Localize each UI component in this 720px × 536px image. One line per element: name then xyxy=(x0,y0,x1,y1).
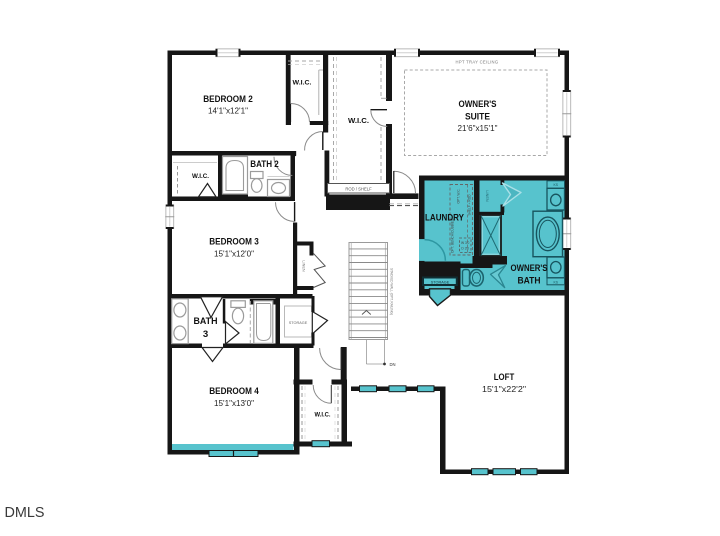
svg-text:W.I.C.: W.I.C. xyxy=(293,80,312,87)
svg-text:BEDROOM 3: BEDROOM 3 xyxy=(209,237,259,248)
svg-text:HPT TRAY CEILING: HPT TRAY CEILING xyxy=(456,60,499,65)
svg-text:KS: KS xyxy=(554,183,559,187)
svg-text:W.I.C.: W.I.C. xyxy=(348,116,369,125)
svg-text:OWNER'S: OWNER'S xyxy=(459,99,497,110)
svg-text:STACKED WALL (OPT. RAILING): STACKED WALL (OPT. RAILING) xyxy=(390,268,394,315)
svg-text:3: 3 xyxy=(203,329,208,340)
svg-text:BEDROOM 2: BEDROOM 2 xyxy=(203,94,253,105)
svg-text:LINEN: LINEN xyxy=(485,190,489,201)
svg-text:OPT. BENCH/CUBBIES: OPT. BENCH/CUBBIES xyxy=(451,219,455,253)
svg-text:SHELF + ROD: SHELF + ROD xyxy=(468,194,472,216)
svg-text:LAUNDRY: LAUNDRY xyxy=(425,213,465,224)
svg-text:STORAGE: STORAGE xyxy=(431,280,450,284)
svg-text:14'1"x12'1": 14'1"x12'1" xyxy=(208,106,248,115)
svg-text:STORAGE: STORAGE xyxy=(289,321,308,325)
svg-text:OWNER'S: OWNER'S xyxy=(511,263,548,273)
svg-text:LINEN: LINEN xyxy=(302,260,306,271)
svg-text:15'1"x12'0": 15'1"x12'0" xyxy=(214,250,254,259)
svg-text:15'1"x22'2": 15'1"x22'2" xyxy=(482,385,526,394)
svg-text:W.I.C.: W.I.C. xyxy=(315,412,331,419)
svg-text:LOFT: LOFT xyxy=(494,372,515,383)
svg-text:D 3'0: D 3'0 xyxy=(461,247,469,251)
svg-text:KS: KS xyxy=(554,280,559,284)
svg-text:OPT. W.C.: OPT. W.C. xyxy=(457,188,461,203)
svg-text:SUITE: SUITE xyxy=(465,112,491,123)
svg-text:15'1"x13'0": 15'1"x13'0" xyxy=(214,399,254,408)
svg-text:BATH: BATH xyxy=(194,316,218,327)
svg-text:21'6"x15'1": 21'6"x15'1" xyxy=(458,124,498,133)
svg-text:W.I.C.: W.I.C. xyxy=(192,173,209,180)
svg-text:DN: DN xyxy=(390,362,396,367)
svg-text:W 3'0: W 3'0 xyxy=(461,241,469,245)
svg-text:DMLS: DMLS xyxy=(5,505,45,521)
svg-text:BEDROOM 4: BEDROOM 4 xyxy=(209,386,259,397)
svg-text:BATH: BATH xyxy=(518,276,541,286)
svg-text:ROD / SHELF: ROD / SHELF xyxy=(345,187,372,192)
svg-text:BATH 2: BATH 2 xyxy=(250,159,279,170)
